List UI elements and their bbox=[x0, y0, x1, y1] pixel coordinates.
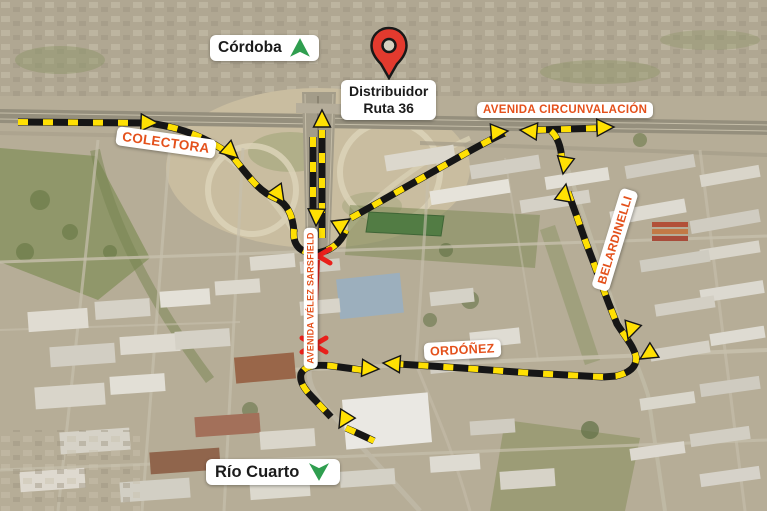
north-arrow-icon bbox=[289, 38, 311, 58]
street-label-velez-sarsfield: AVENIDA VÉLEZ SARSFIELD bbox=[304, 227, 318, 368]
route-arrowhead-icon bbox=[519, 122, 537, 140]
route-arrowhead-icon bbox=[314, 110, 331, 127]
route-arrowhead-icon bbox=[361, 359, 379, 377]
south-arrow-icon bbox=[307, 462, 331, 482]
route-arrowhead-icon bbox=[382, 355, 400, 373]
location-pin-icon bbox=[368, 26, 410, 84]
detour-map-graphic: Córdoba Distribuidor Ruta 36 AVENIDA CIR… bbox=[0, 0, 767, 511]
destination-label-cordoba: Córdoba bbox=[210, 35, 319, 61]
pin-caption-line2: Ruta 36 bbox=[363, 100, 414, 117]
ordonez-text: ORDÓÑEZ bbox=[430, 341, 495, 358]
destination-south-text: Río Cuarto bbox=[215, 463, 299, 482]
detour-route-lines bbox=[18, 122, 636, 441]
circunvalacion-text: AVENIDA CIRCUNVALACIÓN bbox=[483, 104, 647, 116]
route-arrowhead-icon bbox=[597, 119, 615, 137]
velez-sarsfield-text: AVENIDA VÉLEZ SARSFIELD bbox=[306, 232, 316, 363]
pin-caption-line1: Distribuidor bbox=[349, 83, 428, 100]
pin-caption: Distribuidor Ruta 36 bbox=[341, 80, 436, 120]
route-arrowhead-icon bbox=[555, 156, 575, 176]
route-arrowheads bbox=[141, 110, 659, 433]
destination-north-text: Córdoba bbox=[218, 39, 282, 57]
street-label-circunvalacion: AVENIDA CIRCUNVALACIÓN bbox=[477, 102, 653, 118]
destination-label-rio-cuarto: Río Cuarto bbox=[206, 459, 340, 485]
